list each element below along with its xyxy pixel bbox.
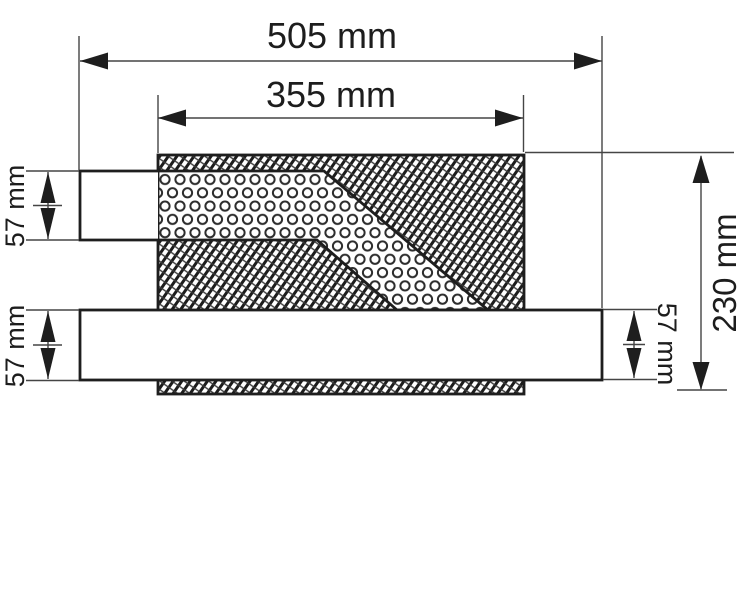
arrowhead-up-icon — [41, 311, 56, 342]
arrowhead-up-icon — [41, 172, 56, 203]
arrowhead-up-icon — [627, 311, 642, 341]
dim-label-inner-body-length: 355 mm — [266, 74, 396, 115]
arrowhead-down-icon — [693, 362, 710, 390]
arrowhead-down-icon — [627, 348, 642, 378]
dim-label-outlet-pipe-diameter-right: 57 mm — [652, 303, 682, 386]
dim-label-overall-length: 505 mm — [267, 15, 397, 56]
arrowhead-right-icon — [495, 110, 523, 127]
arrowhead-left-icon — [158, 110, 186, 127]
arrowhead-down-icon — [41, 208, 56, 239]
muffler-technical-drawing: 505 mm 355 mm 57 mm — [0, 0, 738, 600]
muffler-geometry — [80, 155, 602, 394]
dim-outlet-pipe-diameter-left: 57 mm — [0, 305, 79, 388]
arrowhead-up-icon — [693, 155, 710, 183]
inlet-pipe-stub — [80, 171, 158, 240]
dim-inner-body-length: 355 mm — [158, 74, 524, 153]
dim-inlet-pipe-diameter: 57 mm — [0, 165, 79, 248]
arrowhead-left-icon — [80, 53, 108, 70]
dim-label-outlet-pipe-diameter-left: 57 mm — [0, 305, 30, 388]
dim-label-inlet-pipe-diameter: 57 mm — [0, 165, 30, 248]
dim-outlet-pipe-diameter-right: 57 mm — [603, 303, 682, 386]
dim-label-overall-height: 230 mm — [706, 213, 738, 332]
arrowhead-down-icon — [41, 348, 56, 379]
through-pipe — [80, 310, 602, 380]
drawing-canvas: 505 mm 355 mm 57 mm — [0, 0, 738, 600]
arrowhead-right-icon — [574, 53, 602, 70]
